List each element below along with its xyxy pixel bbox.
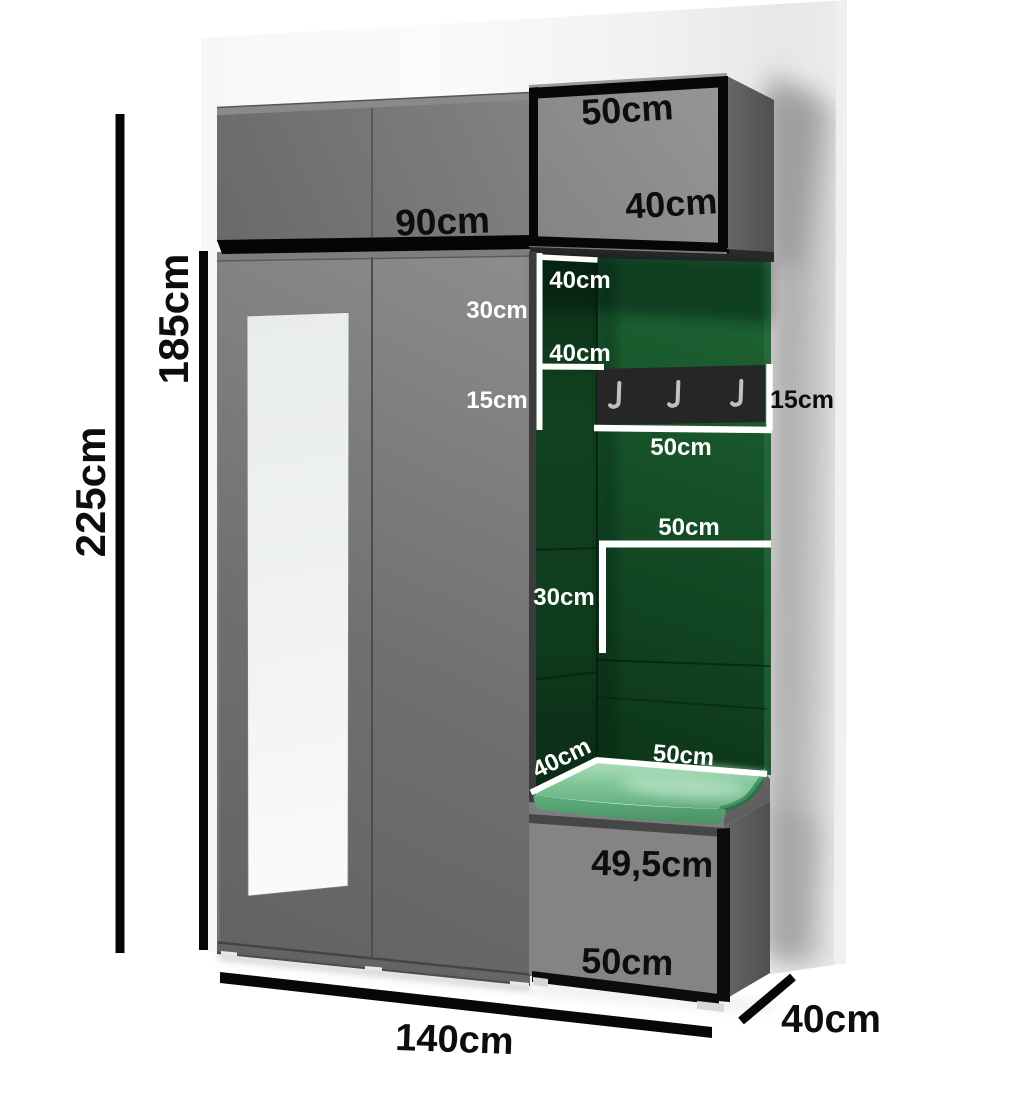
svg-text:50cm: 50cm bbox=[658, 514, 719, 541]
svg-text:30cm: 30cm bbox=[533, 584, 594, 611]
svg-text:140cm: 140cm bbox=[395, 1017, 515, 1063]
svg-text:225cm: 225cm bbox=[67, 427, 114, 558]
svg-text:30cm: 30cm bbox=[466, 297, 527, 324]
svg-text:50cm: 50cm bbox=[650, 434, 711, 461]
svg-text:49,5cm: 49,5cm bbox=[591, 842, 714, 885]
svg-text:40cm: 40cm bbox=[781, 998, 881, 1041]
svg-text:40cm: 40cm bbox=[549, 340, 610, 367]
svg-text:90cm: 90cm bbox=[395, 199, 491, 243]
svg-text:15cm: 15cm bbox=[466, 387, 527, 414]
svg-text:50cm: 50cm bbox=[580, 86, 674, 133]
svg-text:40cm: 40cm bbox=[624, 180, 718, 227]
svg-text:185cm: 185cm bbox=[150, 254, 197, 385]
svg-text:50cm: 50cm bbox=[581, 940, 674, 983]
svg-text:15cm: 15cm bbox=[770, 386, 834, 414]
svg-text:50cm: 50cm bbox=[652, 740, 715, 772]
svg-text:40cm: 40cm bbox=[549, 267, 610, 294]
